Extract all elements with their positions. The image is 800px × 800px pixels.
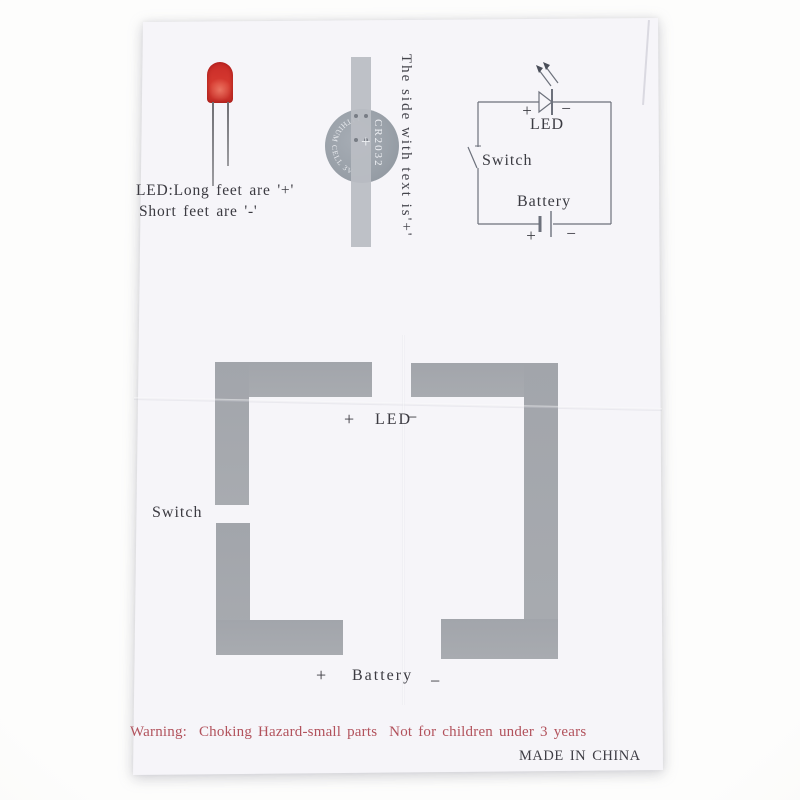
schematic-labels: + − LED Switch Battery + −	[482, 99, 576, 245]
tape-dot	[354, 114, 358, 118]
svg-text:LED: LED	[530, 116, 564, 133]
svg-text:Switch: Switch	[482, 152, 532, 169]
coin-cell-model: CR2032	[372, 119, 384, 168]
svg-text:Battery: Battery	[517, 193, 571, 210]
led-illustration	[207, 62, 233, 103]
tape-dot	[364, 114, 368, 118]
circuit-schematic: + − LED Switch Battery + −	[455, 55, 620, 245]
tape-dot	[354, 138, 358, 142]
template-switch-label: Switch	[152, 504, 202, 522]
trace-right-arm	[524, 363, 558, 659]
switch-lever	[468, 147, 477, 168]
led-triangle-icon	[539, 92, 552, 112]
led-note-line2: Short feet are '-'	[139, 203, 258, 221]
battery-tape-strip	[351, 57, 371, 247]
template-battery-minus: −	[430, 671, 440, 692]
template-battery-label: Battery	[352, 667, 413, 685]
trace-bottom-right-bar	[441, 619, 558, 659]
battery-side-caption: The side with text is'+'	[397, 54, 414, 269]
template-led-minus: −	[407, 407, 417, 428]
trace-bottom-left-bar	[216, 620, 343, 655]
choking-hazard-warning: Warning: Choking Hazard-small parts Not …	[130, 724, 586, 741]
svg-text:−: −	[566, 224, 576, 243]
made-in-china-label: MADE IN CHINA	[519, 748, 641, 765]
template-led-plus: +	[344, 409, 354, 430]
template-battery-plus: +	[316, 665, 326, 686]
led-note-line1: LED:Long feet are '+'	[136, 182, 294, 200]
led-long-lead	[212, 102, 214, 186]
product-photo: + LED − Switch + Battery − LED:Long feet…	[0, 0, 800, 800]
svg-text:+: +	[526, 226, 536, 245]
led-short-lead	[227, 102, 229, 166]
coin-cell-plus: +	[361, 132, 371, 152]
trace-left-upper-arm	[215, 362, 249, 505]
led-light-arrow-icons	[536, 62, 550, 73]
